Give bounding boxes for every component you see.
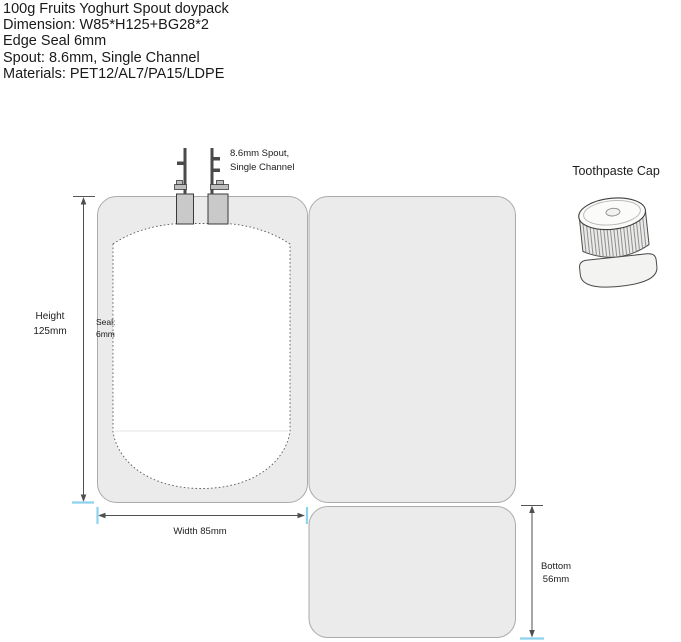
toothpaste-cap-drawing: [573, 194, 659, 290]
spout-flange-bump-right: [217, 181, 224, 185]
back-panel: [309, 197, 516, 503]
spout-label: 8.6mm Spout, Single Channel: [230, 147, 294, 174]
toothpaste-cap-label: Toothpaste Cap: [554, 164, 678, 178]
spout-flange-left: [175, 185, 187, 190]
width-dimension: [98, 507, 308, 524]
seal-label: Seal: 6mm: [96, 317, 115, 340]
packaging-spec-sheet: 100g Fruits Yoghurt Spout doypack Dimens…: [0, 0, 681, 642]
width-label: Width 85mm: [147, 526, 253, 537]
spout-flange-right: [211, 185, 229, 190]
height-label: Height 125mm: [22, 309, 78, 339]
spout-base-right: [208, 194, 228, 224]
pouch-interior: [113, 224, 290, 489]
spout-right-tab-lower: [214, 169, 221, 173]
spout-left-tab: [177, 162, 184, 166]
bottom-label: Bottom 56mm: [524, 560, 588, 586]
bottom-gusset-panel: [309, 507, 516, 638]
height-dimension: [72, 197, 95, 503]
spout-right-tab-upper: [214, 157, 221, 161]
cap-base-flange: [579, 253, 659, 290]
spout-flange-bump-left: [177, 181, 183, 185]
spout-base-left: [177, 194, 194, 224]
